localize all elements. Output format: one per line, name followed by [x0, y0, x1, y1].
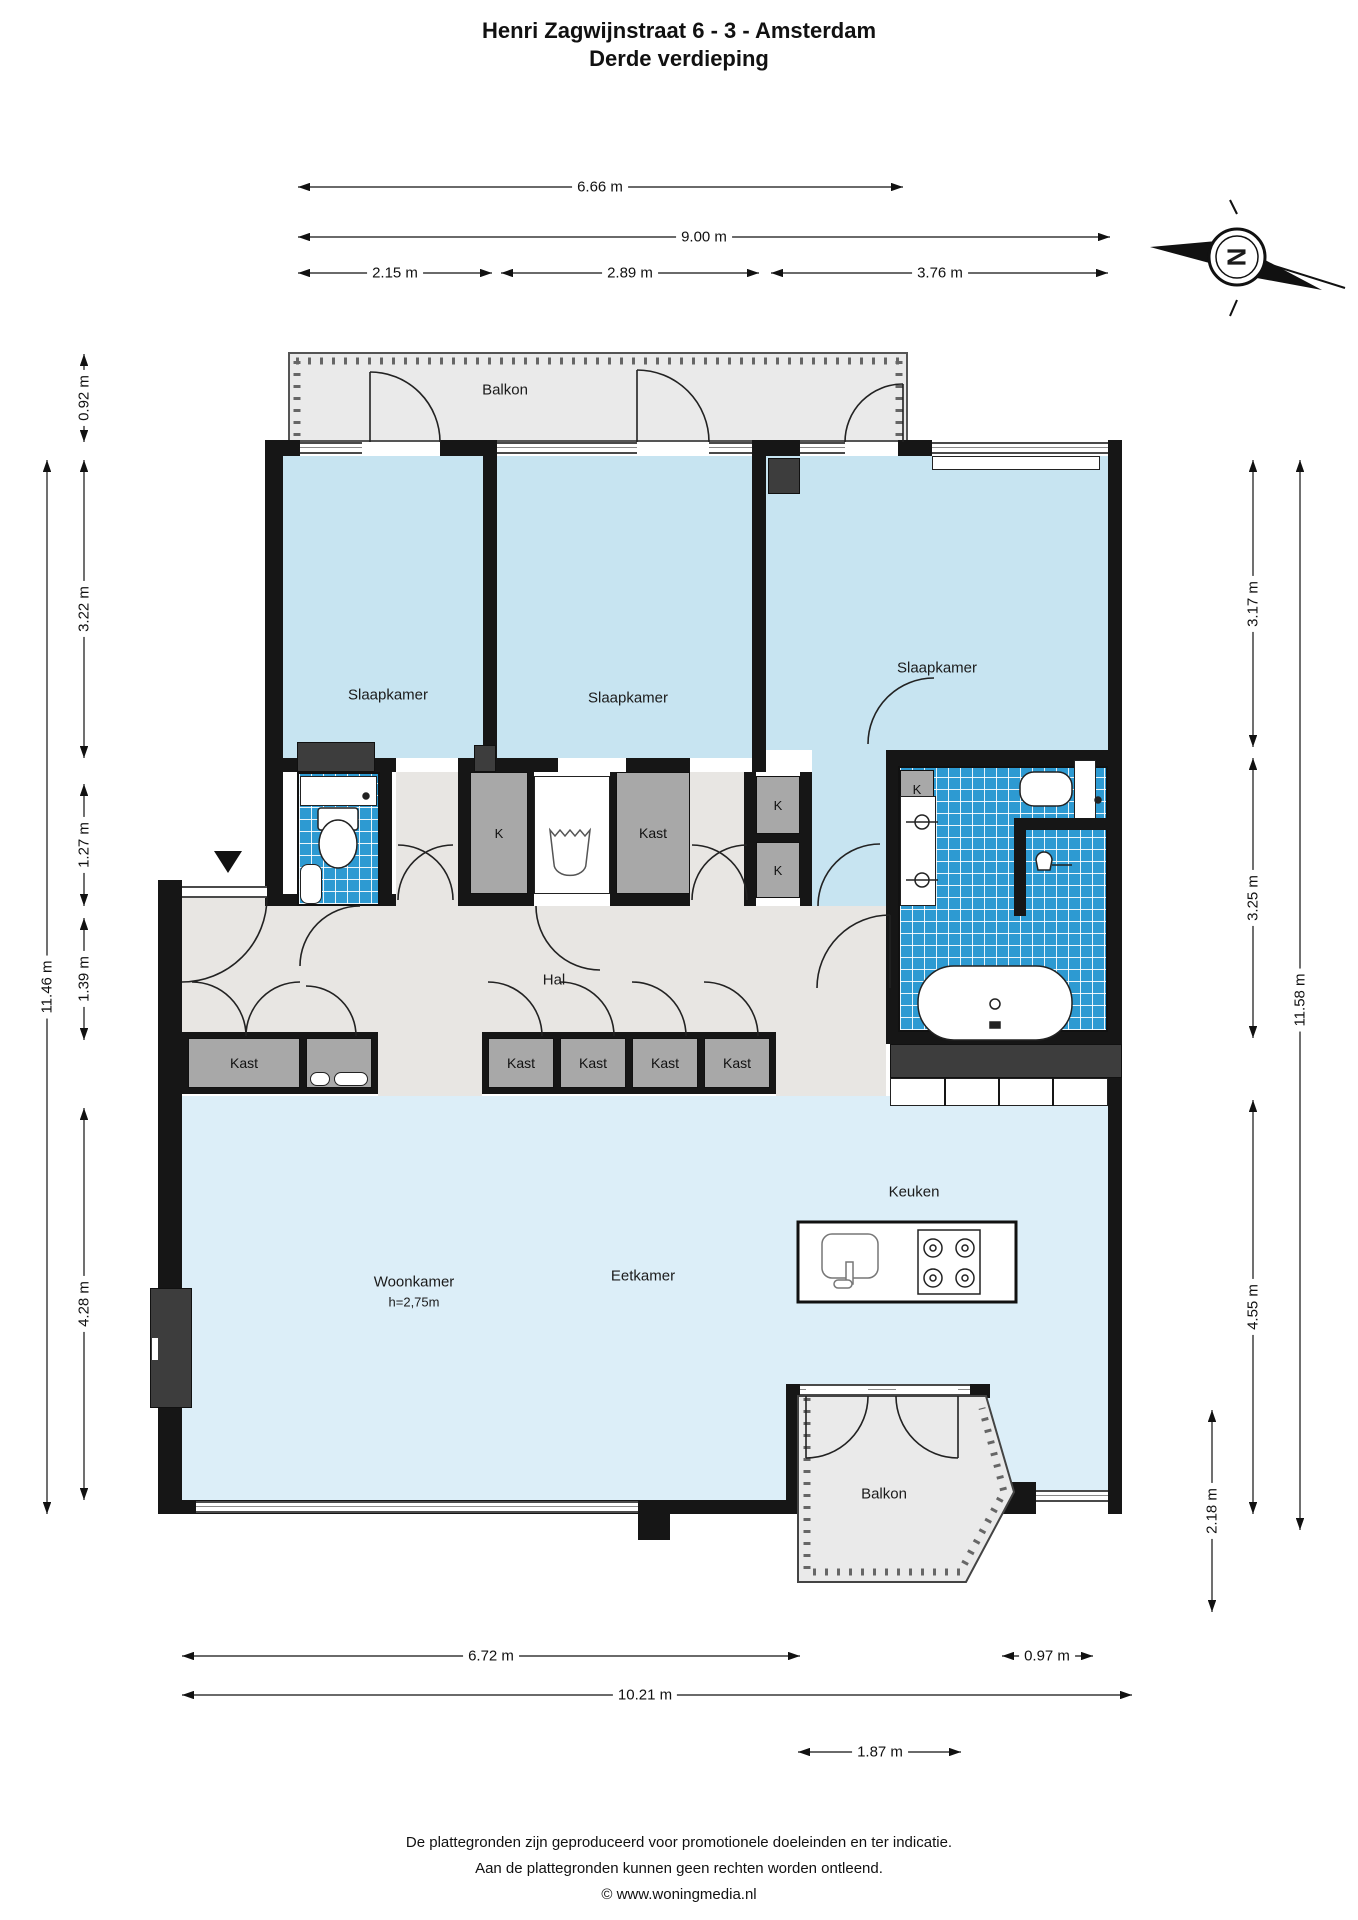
wall [800, 772, 812, 906]
closet-kast-hall-3: Kast [632, 1038, 698, 1088]
closet-kast-strip: Kast [616, 772, 690, 894]
room-woonkamer-eetkamer-keuken [182, 1096, 1108, 1500]
washing-machine [534, 776, 610, 894]
hal-passage-kitchen [776, 1040, 886, 1096]
wall [380, 772, 392, 906]
closet-label: Kast [723, 1055, 751, 1071]
dim-bottom-window: 0.97 m [1019, 1648, 1075, 1665]
label-balcony-top: Balkon [482, 382, 528, 399]
dim-left-total: 11.46 m [39, 955, 56, 1018]
room-slaapkamer-3 [766, 456, 1108, 750]
closet-label: Kast [507, 1055, 535, 1071]
room-slaapkamer-3-nook [812, 750, 886, 906]
balcony-door-opening [637, 442, 709, 454]
duct-b3 [768, 458, 800, 494]
wall [786, 1384, 800, 1514]
page-title: Henri Zagwijnstraat 6 - 3 - Amsterdam [0, 18, 1358, 44]
closet-kast-hall-1: Kast [488, 1038, 554, 1088]
wall-left-lower [158, 880, 182, 1514]
wall [886, 1032, 1122, 1044]
wall [626, 758, 690, 772]
page-subtitle: Derde verdieping [0, 46, 1358, 72]
wall [886, 750, 898, 1032]
dim-top-bedroom1: 2.15 m [367, 265, 423, 282]
dim-right-total: 11.58 m [1292, 968, 1309, 1031]
room-slaapkamer-1 [283, 456, 483, 758]
window-sill [932, 456, 1100, 470]
dim-right-bathroom: 3.25 m [1245, 870, 1262, 926]
label-slaapkamer-3: Slaapkamer [897, 660, 977, 677]
closet-kast-hall-left: Kast [188, 1038, 300, 1088]
room-hal [283, 906, 886, 1040]
entrance-arrow-icon [214, 851, 242, 873]
closet-label: K [774, 798, 783, 813]
cabinet-divider [1052, 1078, 1054, 1106]
dim-left-living: 4.28 m [76, 1276, 93, 1332]
wall [1108, 1482, 1122, 1514]
label-living-height: h=2,75m [389, 1295, 440, 1310]
dim-left-balcony: 0.92 m [76, 370, 93, 426]
wall [752, 440, 800, 456]
room-balcony-top [288, 352, 908, 442]
dim-left-bedrooms: 3.22 m [76, 581, 93, 637]
closet-label: K [495, 826, 504, 841]
dim-top-bedroom3: 3.76 m [912, 265, 968, 282]
wall-shower [1014, 830, 1026, 916]
dim-top-balcony: 6.66 m [572, 179, 628, 196]
dim-top-bedroom2: 2.89 m [602, 265, 658, 282]
balcony-door-opening [896, 1386, 958, 1394]
closet-k-lower: K [756, 842, 800, 898]
closet-label: Kast [579, 1055, 607, 1071]
wall [756, 834, 800, 842]
meter-icon [310, 1072, 330, 1086]
dim-bottom-balcony: 1.87 m [852, 1744, 908, 1761]
entry-door [182, 886, 267, 898]
wall [970, 1384, 990, 1398]
bath-toilet-cistern [1074, 760, 1096, 820]
bath-washbasin [900, 796, 936, 906]
wall [440, 440, 497, 456]
pillar [638, 1500, 670, 1540]
balcony-door-opening [806, 1386, 868, 1394]
label-slaapkamer-1: Slaapkamer [348, 687, 428, 704]
label-balcony-bottom: Balkon [861, 1486, 907, 1503]
wall-right [1108, 440, 1122, 1514]
wall-shower [1014, 818, 1108, 830]
cabinet-divider [944, 1078, 946, 1106]
dim-right-living: 4.55 m [1245, 1279, 1262, 1335]
floorplan-canvas: Henri Zagwijnstraat 6 - 3 - Amsterdam De… [0, 0, 1358, 1920]
chimney-slit [152, 1338, 158, 1360]
duct-b2 [474, 745, 496, 772]
window-band-bottom-right [1036, 1490, 1108, 1502]
hal-passage-b [690, 772, 752, 906]
balcony-door-opening [362, 442, 440, 454]
closet-label: Kast [651, 1055, 679, 1071]
label-keuken: Keuken [889, 1184, 940, 1201]
balcony-door-opening [845, 442, 898, 454]
cabinet-divider [998, 1078, 1000, 1106]
wall [752, 456, 766, 772]
footer-disclaimer-2: Aan de plattegronden kunnen geen rechten… [0, 1860, 1358, 1877]
hal-passage-living [378, 1040, 482, 1096]
label-woonkamer: Woonkamer [374, 1274, 455, 1291]
dim-bottom-living: 6.72 m [463, 1648, 519, 1665]
closet-k-strip: K [470, 772, 528, 894]
closet-kast-hall-4: Kast [704, 1038, 770, 1088]
wall [744, 772, 756, 906]
wall-left-upper [265, 440, 283, 906]
kitchen-counter [890, 1044, 1122, 1078]
closet-label: K [774, 863, 783, 878]
closet-k-upper: K [756, 776, 800, 834]
wc-basin-counter [300, 776, 377, 806]
wall [610, 894, 690, 906]
wall [990, 1482, 1036, 1514]
wall [458, 894, 534, 906]
dim-bottom-total: 10.21 m [613, 1687, 677, 1704]
window-band-bottom [196, 1501, 638, 1513]
dim-right-bedroom3: 3.17 m [1245, 576, 1262, 632]
footer-copyright: © www.woningmedia.nl [0, 1886, 1358, 1903]
footer-disclaimer-1: De plattegronden zijn geproduceerd voor … [0, 1834, 1358, 1851]
room-hal-vestibule [182, 897, 283, 1040]
meter-icon [334, 1072, 368, 1086]
wall [458, 758, 558, 772]
compass-letter: N [1222, 248, 1253, 267]
wall [898, 440, 932, 456]
wardrobe-dark-b1 [297, 742, 375, 772]
room-slaapkamer-2 [497, 456, 752, 758]
label-eetkamer: Eetkamer [611, 1268, 675, 1285]
dim-top-total: 9.00 m [676, 229, 732, 246]
closet-label: Kast [639, 825, 667, 841]
dim-left-strip: 1.27 m [76, 817, 93, 873]
wc-fountain [300, 864, 322, 904]
label-hal: Hal [543, 972, 566, 989]
dim-right-balcony: 2.18 m [1204, 1483, 1221, 1539]
hal-passage-a [396, 772, 458, 906]
wall [458, 772, 470, 906]
closet-label: K [913, 782, 922, 797]
closet-label: Kast [230, 1055, 258, 1071]
label-slaapkamer-2: Slaapkamer [588, 690, 668, 707]
dim-left-hall: 1.39 m [76, 951, 93, 1007]
closet-kast-hall-2: Kast [560, 1038, 626, 1088]
wall [483, 456, 497, 758]
